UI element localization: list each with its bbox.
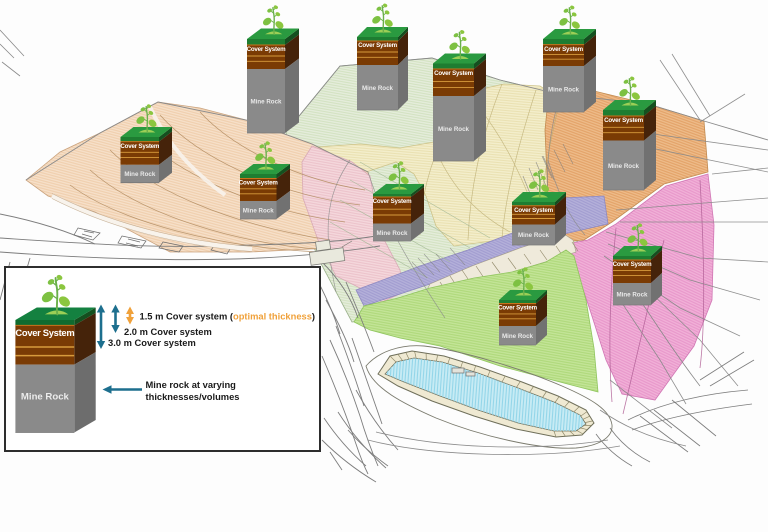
- svg-text:Cover System: Cover System: [247, 46, 287, 53]
- svg-text:Cover System: Cover System: [604, 117, 644, 124]
- svg-text:Cover System: Cover System: [613, 261, 653, 268]
- svg-text:Cover System: Cover System: [498, 305, 538, 312]
- svg-text:Cover System: Cover System: [120, 143, 160, 150]
- svg-text:Mine Rock: Mine Rock: [502, 333, 534, 340]
- svg-text:Mine Rock: Mine Rock: [21, 392, 70, 403]
- svg-text:Mine Rock: Mine Rock: [251, 99, 283, 106]
- svg-text:Mine Rock: Mine Rock: [377, 230, 409, 237]
- svg-text:Mine rock at varying: Mine rock at varying: [146, 380, 237, 390]
- svg-text:Mine Rock: Mine Rock: [243, 208, 275, 215]
- svg-text:Mine Rock: Mine Rock: [548, 87, 580, 94]
- svg-text:Mine Rock: Mine Rock: [608, 163, 640, 170]
- svg-text:Cover System: Cover System: [15, 327, 74, 338]
- svg-text:2.0 m Cover system: 2.0 m Cover system: [124, 327, 212, 337]
- svg-text:3.0 m Cover system: 3.0 m Cover system: [108, 338, 196, 348]
- svg-text:Mine Rock: Mine Rock: [362, 85, 394, 92]
- svg-text:1.5 m Cover system (optimal th: 1.5 m Cover system (optimal thickness): [140, 312, 316, 322]
- svg-text:Cover System: Cover System: [373, 198, 413, 205]
- svg-text:Mine Rock: Mine Rock: [617, 292, 649, 299]
- svg-text:thicknesses/volumes: thicknesses/volumes: [146, 392, 240, 402]
- svg-text:Cover System: Cover System: [544, 46, 584, 53]
- svg-text:Mine Rock: Mine Rock: [124, 171, 156, 178]
- svg-text:Cover System: Cover System: [514, 207, 554, 214]
- svg-text:Cover System: Cover System: [239, 180, 279, 187]
- svg-text:Cover System: Cover System: [434, 70, 474, 77]
- svg-text:Cover System: Cover System: [358, 42, 398, 49]
- svg-text:Mine Rock: Mine Rock: [518, 232, 550, 239]
- svg-text:Mine Rock: Mine Rock: [438, 126, 470, 133]
